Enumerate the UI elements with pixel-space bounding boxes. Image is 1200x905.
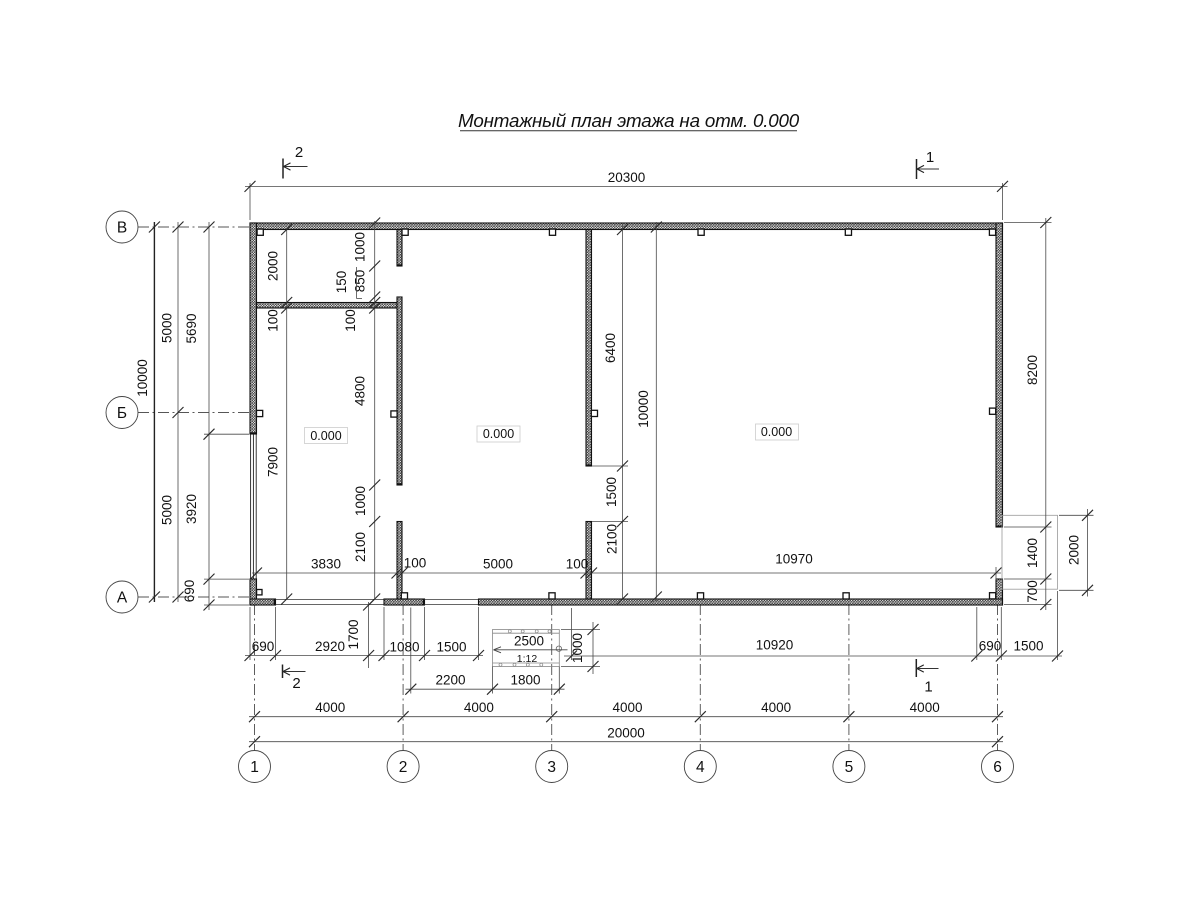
svg-text:1800: 1800 [510,673,540,688]
svg-text:3: 3 [547,759,556,776]
svg-text:10000: 10000 [636,390,651,428]
svg-text:8200: 8200 [1025,355,1040,385]
svg-text:4: 4 [696,759,705,776]
svg-text:2100: 2100 [605,524,620,554]
svg-text:2000: 2000 [266,251,281,281]
svg-text:1000: 1000 [353,232,368,262]
svg-text:4000: 4000 [315,700,345,715]
svg-text:5000: 5000 [160,495,175,525]
svg-text:6400: 6400 [603,333,618,363]
svg-text:1: 1 [926,149,934,166]
svg-text:1400: 1400 [1025,538,1040,568]
svg-text:20300: 20300 [608,170,646,185]
svg-text:4000: 4000 [761,700,791,715]
svg-text:1500: 1500 [1013,639,1043,654]
svg-text:690: 690 [252,639,275,654]
svg-text:Б: Б [117,405,127,422]
svg-text:2920: 2920 [315,639,345,654]
svg-text:В: В [117,220,127,237]
svg-text:1080: 1080 [389,640,419,655]
svg-text:10000: 10000 [135,359,150,397]
svg-text:0.000: 0.000 [483,427,514,441]
svg-text:5000: 5000 [160,313,175,343]
svg-text:4800: 4800 [353,376,368,406]
svg-text:20000: 20000 [607,726,645,741]
svg-text:2100: 2100 [353,532,368,562]
svg-text:100: 100 [266,309,281,332]
svg-text:Монтажный план этажа на отм. 0: Монтажный план этажа на отм. 0.000 [458,110,800,131]
svg-text:1700: 1700 [346,619,361,649]
svg-text:5690: 5690 [184,313,199,343]
svg-text:2000: 2000 [1067,535,1082,565]
svg-text:А: А [117,590,128,607]
svg-text:850: 850 [353,270,368,293]
svg-text:690: 690 [979,639,1002,654]
svg-text:1:12: 1:12 [517,653,538,665]
svg-text:100: 100 [404,556,427,571]
svg-text:1500: 1500 [604,477,619,507]
svg-text:2: 2 [292,675,300,692]
svg-text:2200: 2200 [435,673,465,688]
svg-text:100: 100 [343,309,358,332]
svg-text:100: 100 [566,557,589,572]
svg-text:1000: 1000 [353,486,368,516]
svg-text:690: 690 [182,580,197,603]
svg-text:4000: 4000 [612,700,642,715]
svg-text:2: 2 [399,759,408,776]
svg-text:2: 2 [295,144,303,161]
svg-text:700: 700 [1025,580,1040,603]
svg-text:1500: 1500 [436,640,466,655]
svg-text:7900: 7900 [266,447,281,477]
svg-text:1: 1 [250,759,259,776]
svg-text:3830: 3830 [311,557,341,572]
svg-text:5000: 5000 [483,557,513,572]
svg-text:3920: 3920 [184,494,199,524]
svg-text:6: 6 [993,759,1002,776]
svg-text:10920: 10920 [756,638,794,653]
svg-text:4000: 4000 [464,700,494,715]
svg-text:4000: 4000 [910,700,940,715]
svg-text:10970: 10970 [775,552,813,567]
svg-text:1: 1 [924,679,932,696]
svg-text:2500: 2500 [514,633,544,648]
svg-text:150: 150 [334,271,349,294]
svg-text:0.000: 0.000 [310,429,341,443]
svg-text:0.000: 0.000 [761,425,792,439]
svg-text:5: 5 [845,759,854,776]
svg-text:1000: 1000 [570,633,585,663]
